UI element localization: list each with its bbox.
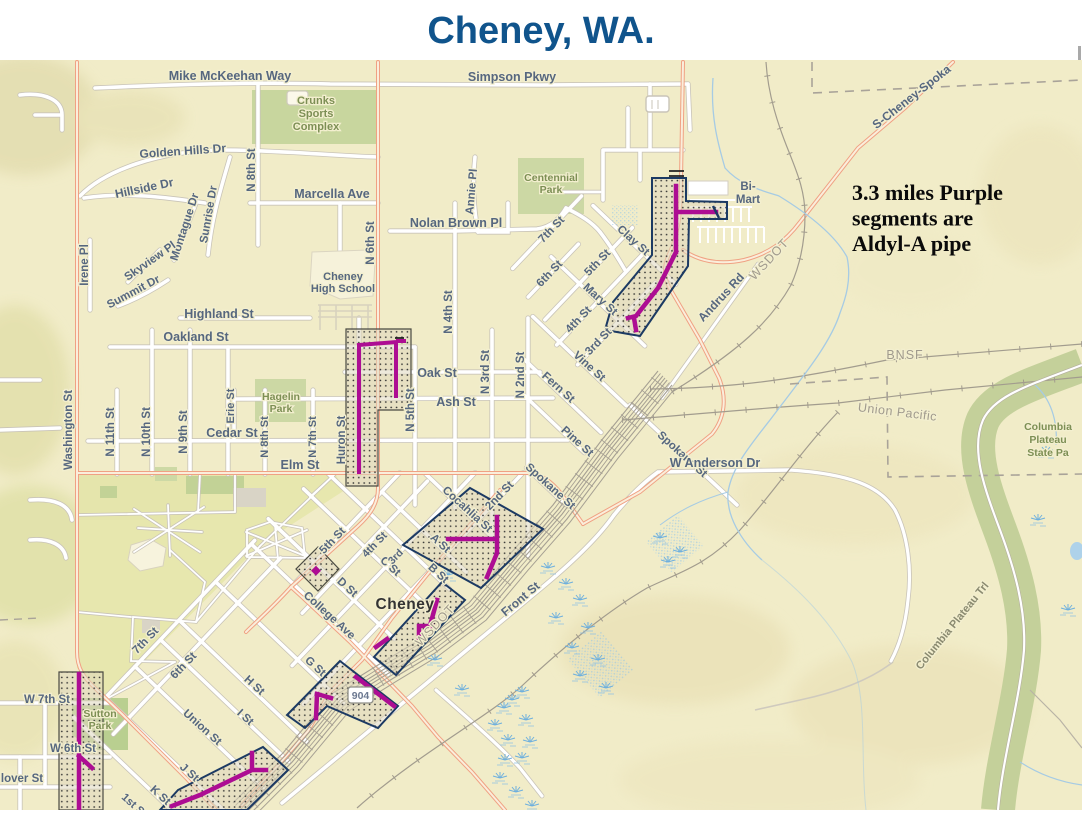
svg-text:lover St: lover St <box>1 773 43 785</box>
svg-text:Erie St: Erie St <box>225 388 237 423</box>
svg-text:N 9th St: N 9th St <box>178 410 190 454</box>
svg-text:N 7th St: N 7th St <box>307 416 319 458</box>
svg-text:Irene Pl: Irene Pl <box>79 244 91 286</box>
svg-text:BNSF: BNSF <box>886 348 923 362</box>
svg-text:W Anderson Dr: W Anderson Dr <box>670 456 761 470</box>
svg-text:Centennial: Centennial <box>524 172 578 184</box>
svg-text:Park: Park <box>540 184 563 196</box>
svg-text:Oakland St: Oakland St <box>163 330 229 344</box>
svg-text:N 11th St: N 11th St <box>105 407 117 456</box>
svg-text:W 6th St: W 6th St <box>50 743 96 755</box>
svg-text:Oak St: Oak St <box>417 366 457 380</box>
svg-text:Highland St: Highland St <box>184 307 254 321</box>
svg-text:Washington St: Washington St <box>63 390 75 470</box>
svg-text:Columbia: Columbia <box>1024 421 1072 433</box>
svg-text:High School: High School <box>311 283 375 295</box>
svg-text:State Pa: State Pa <box>1027 447 1069 459</box>
svg-text:Sports: Sports <box>299 108 334 120</box>
svg-text:W 7th St: W 7th St <box>24 694 70 706</box>
svg-text:Complex: Complex <box>293 121 340 133</box>
svg-text:N 10th St: N 10th St <box>141 407 153 457</box>
svg-text:Bi-: Bi- <box>740 181 756 193</box>
svg-text:Park: Park <box>270 403 293 415</box>
svg-text:Park: Park <box>89 720 112 732</box>
svg-text:N 8th St: N 8th St <box>246 148 258 192</box>
svg-text:N 8th St: N 8th St <box>259 416 271 458</box>
svg-text:Marcella Ave: Marcella Ave <box>294 187 370 201</box>
svg-text:N 2nd St: N 2nd St <box>515 352 527 399</box>
svg-text:Huron St: Huron St <box>336 416 348 465</box>
svg-text:Cheney: Cheney <box>376 596 435 613</box>
svg-text:Aldyl-A pipe: Aldyl-A pipe <box>852 231 971 256</box>
svg-text:904: 904 <box>352 690 370 702</box>
svg-text:segments are: segments are <box>852 206 973 231</box>
svg-text:Hagelin: Hagelin <box>262 391 300 403</box>
svg-text:Plateau: Plateau <box>1029 434 1066 446</box>
svg-text:3.3 miles Purple: 3.3 miles Purple <box>852 180 1003 205</box>
svg-text:N 6th St: N 6th St <box>365 221 377 265</box>
svg-text:N 3rd St: N 3rd St <box>480 350 492 394</box>
svg-text:Elm St: Elm St <box>281 458 321 472</box>
svg-text:N 5th St: N 5th St <box>405 388 417 432</box>
svg-text:Ash St: Ash St <box>436 395 476 409</box>
svg-text:Simpson Pkwy: Simpson Pkwy <box>468 70 556 84</box>
svg-text:Crunks: Crunks <box>297 95 335 107</box>
svg-text:Cheney: Cheney <box>323 271 364 283</box>
svg-text:N 4th St: N 4th St <box>443 290 455 334</box>
svg-text:Sutton: Sutton <box>83 708 116 720</box>
svg-text:Nolan Brown Pl: Nolan Brown Pl <box>410 216 502 230</box>
svg-text:Cedar St: Cedar St <box>206 426 258 440</box>
svg-text:Mart: Mart <box>736 194 760 206</box>
svg-text:Mike McKeehan Way: Mike McKeehan Way <box>169 69 292 83</box>
